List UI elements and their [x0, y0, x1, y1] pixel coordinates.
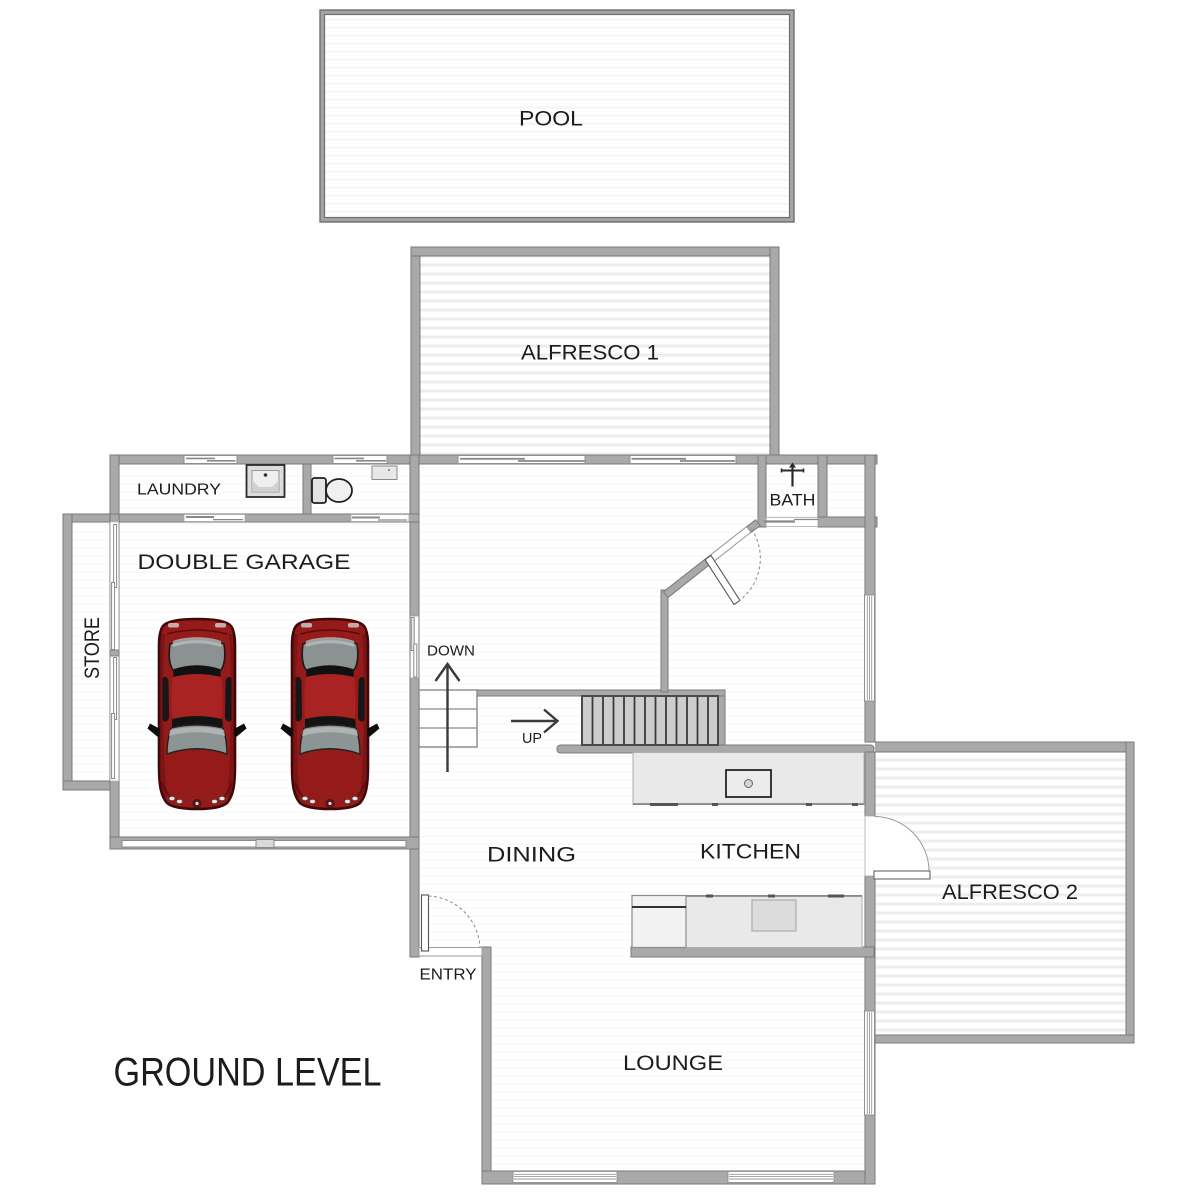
svg-text:ALFRESCO 2: ALFRESCO 2 [942, 881, 1078, 904]
svg-text:GROUND LEVEL: GROUND LEVEL [114, 1051, 382, 1095]
svg-text:DINING: DINING [487, 844, 576, 867]
svg-text:UP: UP [522, 731, 542, 747]
svg-text:STORE: STORE [81, 617, 104, 679]
svg-text:ALFRESCO 1: ALFRESCO 1 [521, 342, 659, 365]
svg-text:DOUBLE GARAGE: DOUBLE GARAGE [138, 551, 351, 574]
svg-text:BATH: BATH [770, 491, 816, 510]
svg-text:ENTRY: ENTRY [420, 966, 477, 983]
svg-text:DOWN: DOWN [427, 643, 475, 659]
svg-text:KITCHEN: KITCHEN [700, 841, 801, 864]
svg-text:LOUNGE: LOUNGE [623, 1052, 723, 1075]
svg-text:LAUNDRY: LAUNDRY [137, 481, 221, 498]
svg-text:POOL: POOL [519, 108, 583, 131]
